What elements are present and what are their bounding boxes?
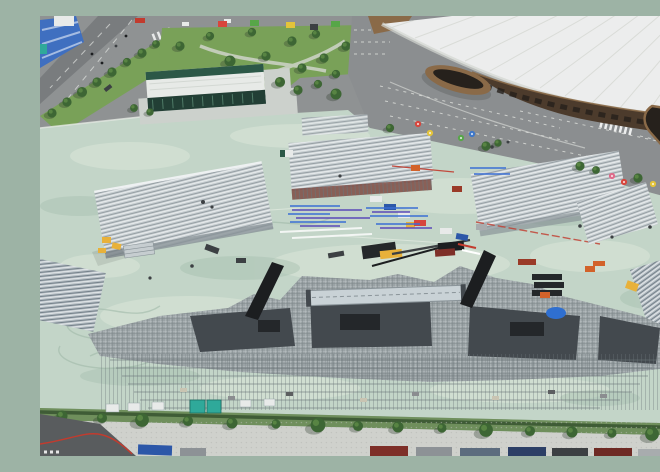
portable-cabin [207,400,221,413]
scene-canvas [40,16,660,456]
tent [286,22,295,28]
blue-tarp [546,307,566,319]
truck [416,447,452,456]
umbrella [415,121,421,127]
tent [250,20,259,26]
van [128,403,140,411]
umbrella [650,181,656,187]
van [106,404,119,412]
car [182,22,189,26]
van [264,399,275,406]
aerial-photo: Aerial view of a large outdoor event ven… [40,16,660,456]
event-hall [137,62,298,125]
portable-cabin [190,400,205,413]
umbrella [609,173,615,179]
scaffold-legs [100,354,660,410]
truck [135,18,145,23]
umbrella [427,130,433,136]
motorbike [115,45,118,48]
motorbike [125,35,128,38]
van [240,400,251,407]
teal-structure [40,44,47,54]
motorbike [91,53,94,56]
truck [594,448,632,456]
motorbike [101,62,104,65]
white-building [54,16,74,26]
truck [552,448,588,456]
truck [138,444,172,455]
truck [508,447,546,456]
truck [370,446,408,456]
tent [331,21,340,27]
van [152,402,164,410]
umbrella [458,135,464,141]
tent [310,24,318,30]
truck [638,449,660,456]
umbrella [469,131,475,137]
laydown-stand-section [302,114,369,135]
tent [218,21,227,27]
truck [460,448,500,456]
truck [180,448,206,456]
umbrella [621,179,627,185]
